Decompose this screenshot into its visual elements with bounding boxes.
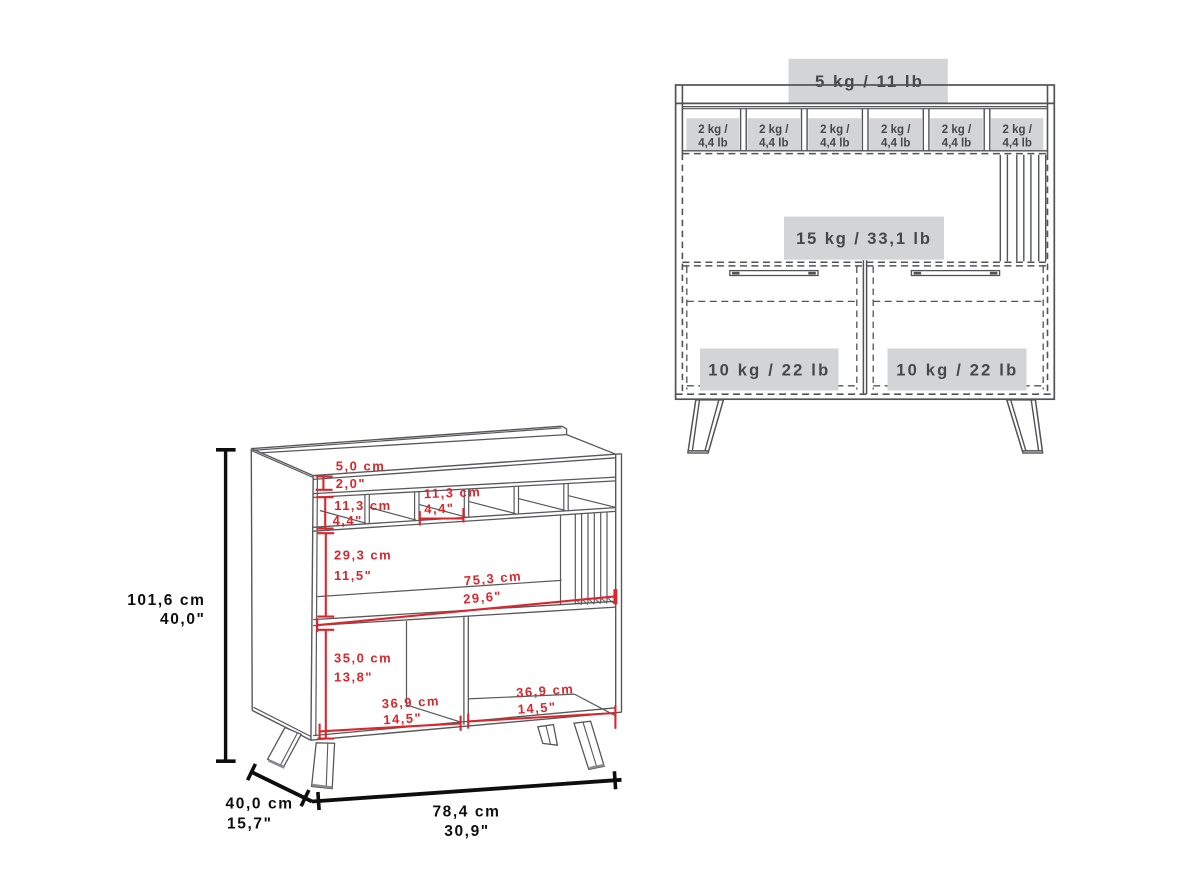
svg-text:101,6 cm: 101,6 cm — [127, 592, 205, 609]
svg-text:11,5": 11,5" — [334, 568, 372, 583]
svg-text:10 kg / 22 lb: 10 kg / 22 lb — [708, 361, 830, 379]
svg-text:36,9 cm: 36,9 cm — [381, 693, 440, 711]
svg-text:35,0 cm: 35,0 cm — [334, 651, 392, 666]
svg-text:5,0 cm: 5,0 cm — [336, 459, 385, 474]
svg-text:4,4": 4,4" — [424, 501, 455, 517]
svg-text:2,0": 2,0" — [336, 476, 366, 491]
svg-text:40,0": 40,0" — [160, 611, 206, 628]
svg-text:4,4 lb: 4,4 lb — [698, 137, 727, 149]
svg-text:4,4 lb: 4,4 lb — [1002, 137, 1031, 149]
svg-text:40,0 cm: 40,0 cm — [226, 796, 294, 813]
svg-text:78,4 cm: 78,4 cm — [432, 803, 500, 820]
svg-text:10 kg / 22 lb: 10 kg / 22 lb — [896, 361, 1018, 379]
svg-text:15 kg / 33,1 lb: 15 kg / 33,1 lb — [796, 230, 932, 248]
svg-text:13,8": 13,8" — [334, 670, 373, 685]
svg-text:11,3 cm: 11,3 cm — [334, 498, 392, 513]
svg-text:4,4 lb: 4,4 lb — [759, 137, 788, 149]
svg-text:2 kg /: 2 kg / — [881, 124, 911, 136]
svg-text:4,4 lb: 4,4 lb — [942, 137, 971, 149]
svg-text:14,5": 14,5" — [383, 710, 423, 727]
svg-text:14,5": 14,5" — [517, 699, 557, 717]
svg-text:4,4 lb: 4,4 lb — [881, 137, 910, 149]
svg-text:4,4 lb: 4,4 lb — [820, 137, 849, 149]
svg-text:2 kg /: 2 kg / — [820, 124, 850, 136]
svg-text:11,3 cm: 11,3 cm — [424, 484, 482, 501]
svg-text:4,4": 4,4" — [333, 513, 363, 528]
svg-text:15,7": 15,7" — [227, 815, 273, 832]
svg-text:5 kg / 11 lb: 5 kg / 11 lb — [815, 72, 924, 91]
svg-text:29,3 cm: 29,3 cm — [334, 547, 392, 562]
svg-text:2 kg /: 2 kg / — [698, 124, 728, 136]
svg-text:2 kg /: 2 kg / — [942, 124, 972, 136]
svg-text:2 kg /: 2 kg / — [1002, 124, 1032, 136]
svg-text:30,9": 30,9" — [444, 823, 490, 840]
svg-text:2 kg /: 2 kg / — [759, 124, 789, 136]
